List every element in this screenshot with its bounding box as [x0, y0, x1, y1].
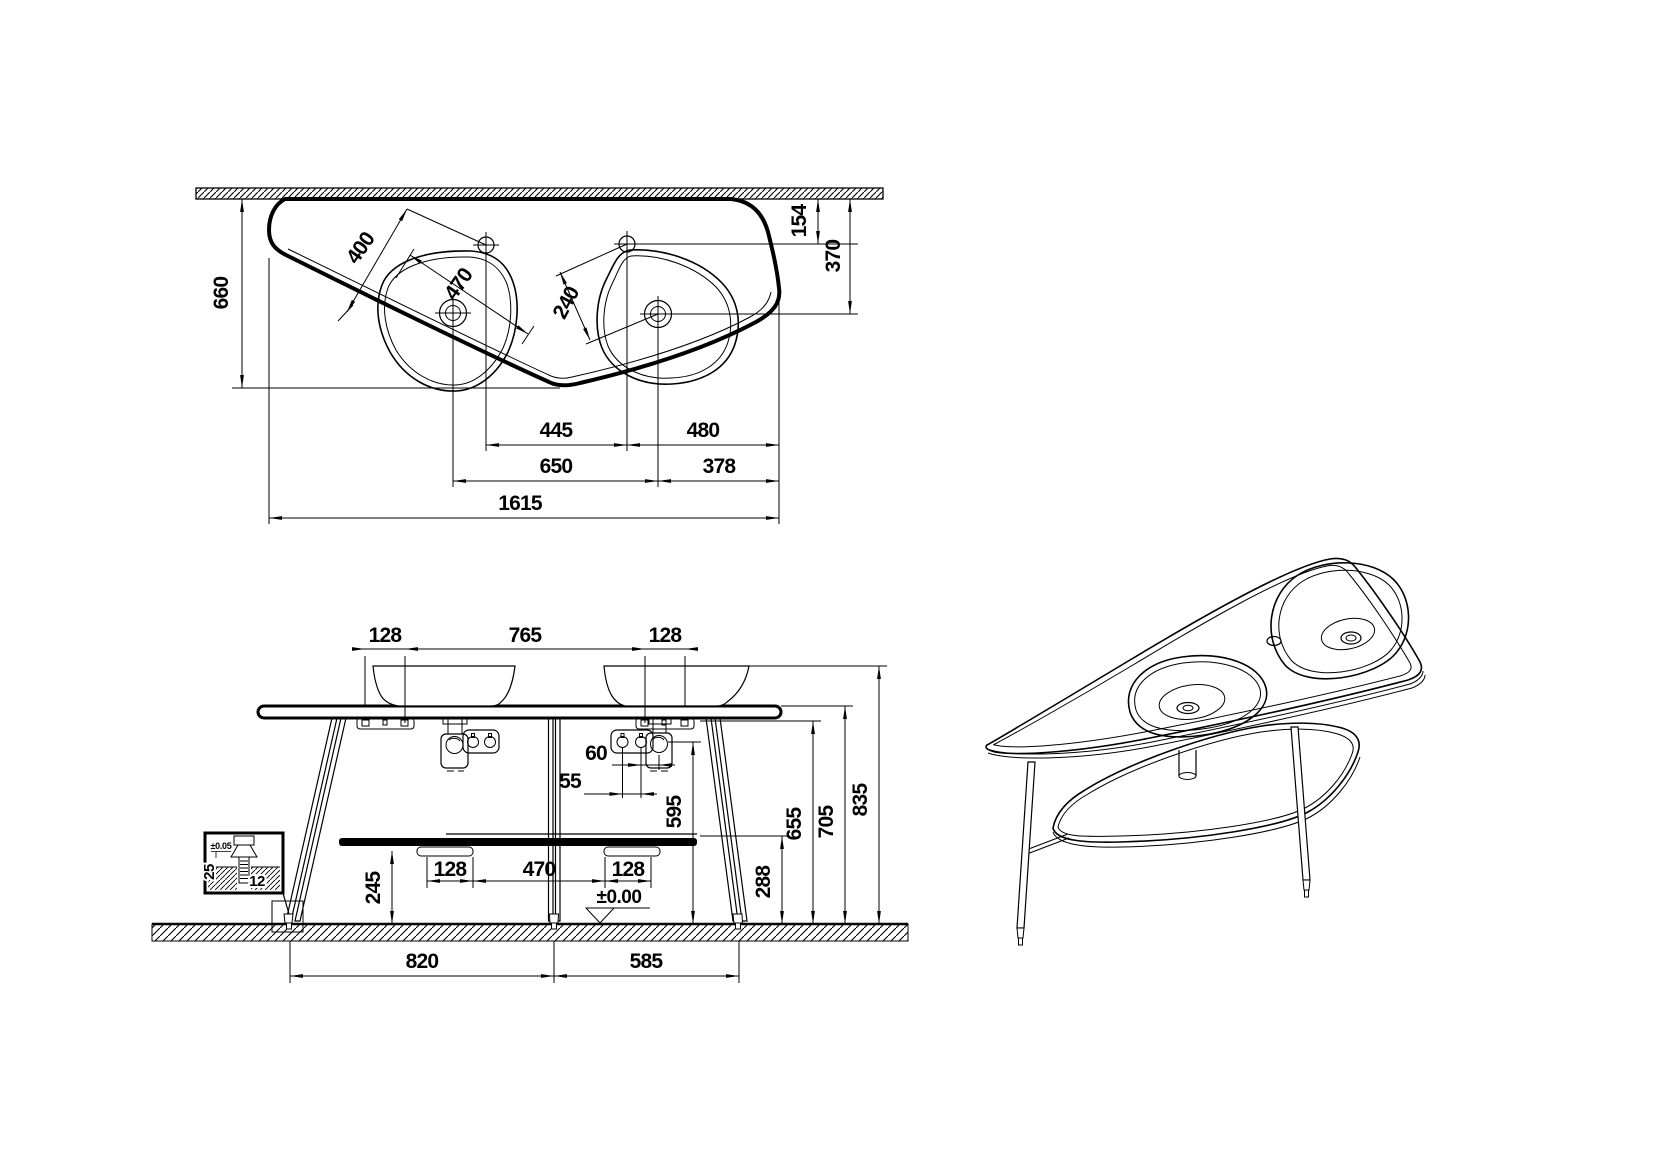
dim-label-378: 378 [703, 455, 737, 478]
iso-right-basin [1271, 563, 1409, 679]
dim-label-445: 445 [540, 419, 574, 442]
right-foot-stud [736, 923, 741, 929]
dim-label-1615: 1615 [498, 492, 543, 515]
datum-label: ±0.00 [597, 887, 642, 908]
dim-label-655: 655 [783, 807, 806, 841]
detail-leg-end [234, 836, 254, 845]
right-trap-swirl-arrow [653, 737, 664, 740]
drawing-canvas: 660 400 470 240 154 [0, 0, 1653, 1167]
iso-left-basin [1128, 656, 1266, 737]
dim-label-820: 820 [406, 950, 439, 973]
dim-plan-470: 470 [396, 249, 534, 344]
shelf-bracket-right [604, 847, 660, 856]
dim-label-370: 370 [822, 240, 845, 273]
dim-label-835: 835 [849, 783, 872, 817]
datum-symbol: ±0.00 [586, 887, 650, 923]
iso-right-foot [1303, 880, 1310, 890]
left-foot-stud [287, 923, 292, 929]
dim-elev-820-585: 820 585 [290, 941, 739, 983]
dim-plan-445: 445 [486, 419, 627, 445]
dim-label-60: 60 [585, 742, 607, 765]
detail-foot-flare [231, 845, 257, 857]
dim-plan-378: 378 [658, 455, 779, 481]
dim-label-660: 660 [210, 277, 233, 310]
iso-tailpipe [1179, 750, 1196, 780]
middle-leg-front [549, 718, 554, 921]
right-holes-plate [611, 730, 653, 753]
left-leg-back [295, 718, 346, 921]
middle-foot [550, 914, 559, 923]
dim-label-705: 705 [815, 805, 838, 839]
iso-right-basin-floor [1318, 614, 1377, 655]
iso-right-drain-inner [1346, 635, 1356, 641]
dim-label-288: 288 [752, 865, 775, 899]
middle-foot-stud [552, 923, 557, 929]
countertop-outline-plan [269, 199, 779, 385]
plan-view: 660 400 470 240 154 [196, 188, 883, 524]
left-foot [284, 914, 293, 923]
dim-plan-370: 370 [658, 199, 858, 314]
detail-box: ±0.05 25 12 [201, 833, 283, 893]
left-tailpipe [448, 718, 462, 734]
dim-label-154: 154 [788, 204, 811, 238]
iso-shelf [1053, 723, 1360, 847]
drawing-sheet: 660 400 470 240 154 [0, 0, 1653, 1167]
detail-leader [283, 893, 289, 914]
iso-view [986, 558, 1425, 945]
dim-label-400: 400 [342, 228, 380, 268]
dim-label-765: 765 [509, 624, 543, 647]
dim-label-55: 55 [559, 770, 582, 793]
dim-label-585: 585 [630, 950, 664, 973]
dim-plan-660: 660 [210, 199, 560, 388]
dim-plan-480: 480 [627, 419, 779, 445]
dim-label-470: 470 [440, 264, 478, 304]
right-bowl-elevation [604, 666, 749, 706]
dim-label-128a: 128 [369, 624, 403, 647]
middle-leg-back [556, 718, 561, 921]
dim-elev-245: 245 [362, 851, 392, 924]
dim-plan-240: 240 [548, 244, 658, 344]
iso-left-drain-outer [1177, 703, 1199, 714]
iso-brace-1 [1026, 834, 1068, 850]
dim-label-480: 480 [687, 419, 720, 442]
dim-label-470e: 470 [523, 858, 556, 881]
iso-left-foot-stud [1019, 938, 1023, 945]
countertop-slab-elevation [258, 706, 781, 718]
dim-label-595: 595 [663, 795, 686, 829]
right-foot [733, 914, 743, 923]
left-trap-swirl-arrow [449, 738, 460, 741]
left-leg-front [286, 718, 337, 921]
iso-right-leg [1291, 727, 1310, 880]
dim-plan-650: 650 [453, 455, 658, 481]
iso-brace-2 [1027, 838, 1069, 854]
iso-right-foot-stud [1305, 890, 1309, 897]
detail-label-tol: ±0.05 [211, 841, 232, 851]
dim-plan-1615: 1615 [269, 492, 779, 518]
iso-left-leg [1017, 762, 1035, 928]
shelf-bracket-left [417, 847, 473, 856]
dim-plan-154: 154 [627, 199, 858, 244]
floor-section-hatch [152, 924, 908, 941]
dim-label-245: 245 [362, 871, 385, 905]
dim-label-128d: 128 [612, 858, 646, 881]
dim-elev-55: 55 [559, 748, 657, 798]
dim-elev-60: 60 [585, 742, 675, 798]
elevation-view: 128 765 128 60 55 595 [152, 624, 908, 983]
left-bowl-elevation [373, 666, 515, 706]
detail-label-25: 25 [201, 864, 218, 880]
left-basin-outer-plan [378, 251, 517, 391]
iso-left-basin-floor [1157, 681, 1227, 724]
dim-label-128b: 128 [649, 624, 683, 647]
left-basin-inner-plan [385, 257, 511, 385]
shelf-board [339, 838, 697, 846]
dim-elev-595: 595 [663, 742, 701, 924]
dim-label-128c: 128 [434, 858, 468, 881]
left-trap-assembly [441, 718, 468, 771]
left-trap-swirl [446, 737, 463, 754]
iso-right-drain-outer [1341, 632, 1361, 644]
dim-label-240: 240 [548, 283, 584, 323]
iso-left-drain-inner [1183, 705, 1193, 711]
dim-elev-bottom-row: 128 470 128 [427, 857, 651, 888]
dim-label-650: 650 [540, 455, 573, 478]
iso-left-foot [1017, 928, 1024, 938]
detail-label-12: 12 [249, 873, 265, 890]
